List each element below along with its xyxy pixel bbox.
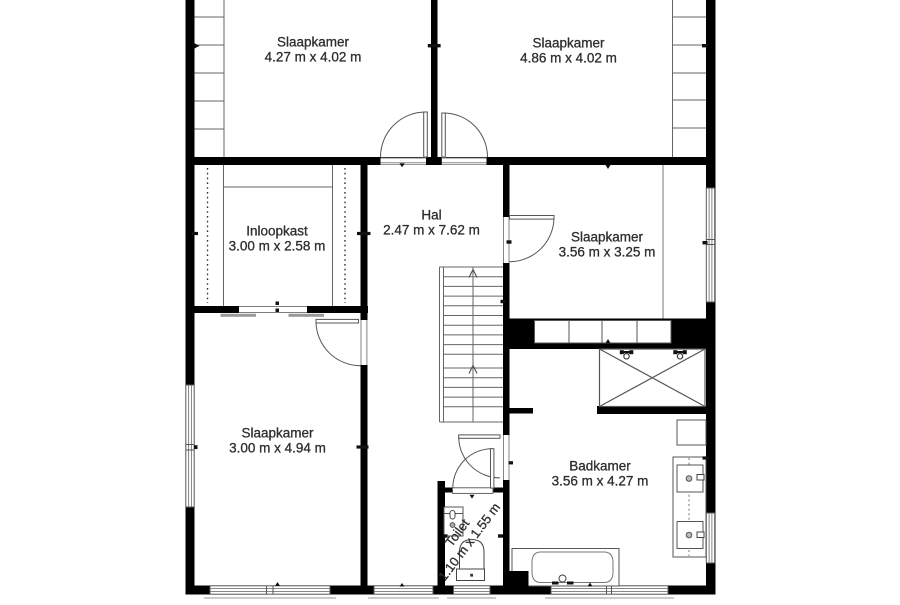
svg-text:3.00 m x 4.94 m: 3.00 m x 4.94 m: [229, 441, 326, 456]
svg-text:4.27 m x 4.02 m: 4.27 m x 4.02 m: [265, 50, 362, 65]
svg-text:Slaapkamer: Slaapkamer: [571, 230, 644, 245]
svg-text:Slaapkamer: Slaapkamer: [532, 36, 605, 51]
svg-text:3.56 m x 4.27 m: 3.56 m x 4.27 m: [552, 474, 649, 489]
svg-text:4.86 m x 4.02 m: 4.86 m x 4.02 m: [520, 51, 617, 66]
svg-text:Slaapkamer: Slaapkamer: [277, 35, 350, 50]
svg-text:3.00 m x 2.58 m: 3.00 m x 2.58 m: [229, 239, 326, 254]
svg-text:Inloopkast: Inloopkast: [246, 224, 308, 239]
svg-text:Hal: Hal: [421, 208, 441, 223]
svg-text:3.56 m x 3.25 m: 3.56 m x 3.25 m: [559, 245, 656, 260]
svg-text:2.47 m x 7.62 m: 2.47 m x 7.62 m: [383, 223, 480, 238]
svg-text:Slaapkamer: Slaapkamer: [241, 426, 314, 441]
svg-text:Badkamer: Badkamer: [569, 459, 631, 474]
